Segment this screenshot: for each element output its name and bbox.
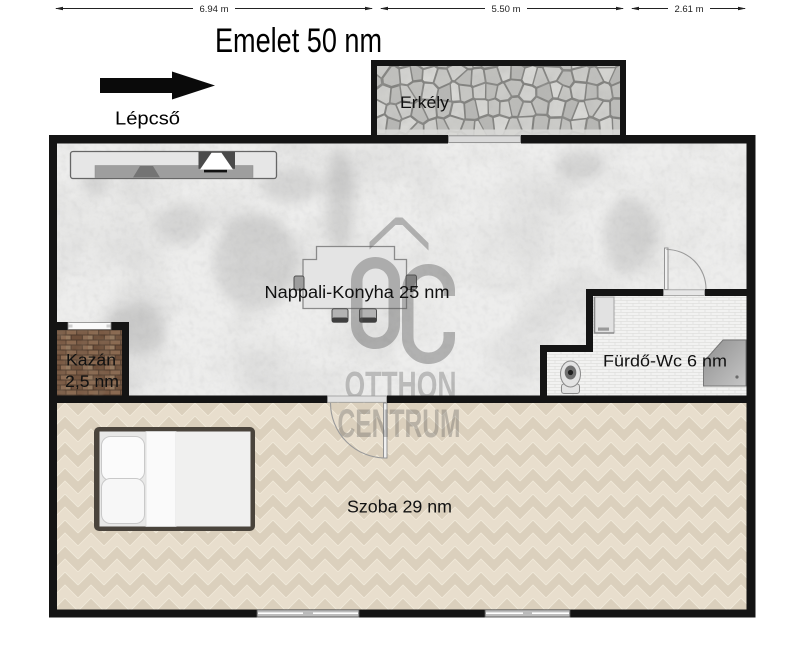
svg-text:Kazán: Kazán [66,351,116,370]
svg-text:2,5 nm: 2,5 nm [65,372,119,391]
svg-text:Nappali-Konyha 25 nm: Nappali-Konyha 25 nm [265,282,450,302]
svg-text:Fürdő-Wc 6 nm: Fürdő-Wc 6 nm [603,352,727,371]
svg-text:Szoba 29 nm: Szoba 29 nm [347,497,452,517]
svg-text:CENTRUM: CENTRUM [338,402,461,446]
svg-text:5.50 m: 5.50 m [491,4,520,15]
svg-text:6.94 m: 6.94 m [199,4,228,15]
svg-text:2.61 m: 2.61 m [674,4,703,15]
svg-text:Erkély: Erkély [400,94,450,112]
svg-text:Emelet 50 nm: Emelet 50 nm [215,22,382,60]
svg-text:Lépcső: Lépcső [115,109,180,129]
